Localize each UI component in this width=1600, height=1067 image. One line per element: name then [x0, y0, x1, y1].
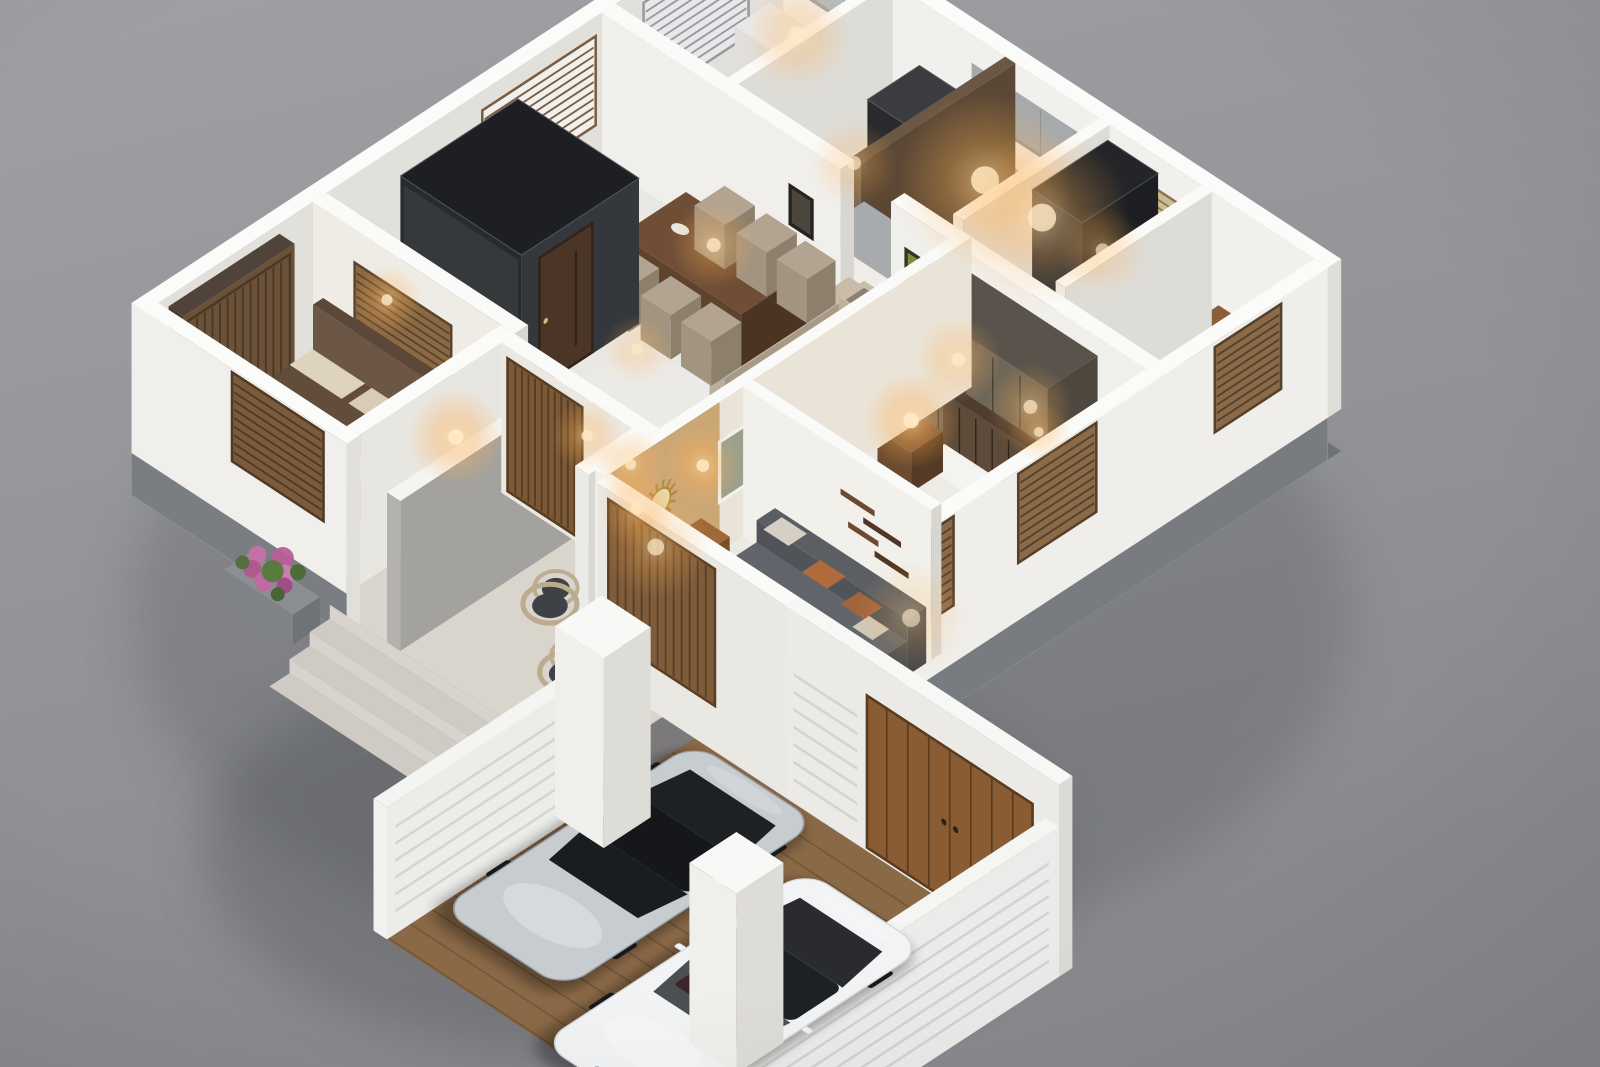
floor-plan-render: 3D isometric single-floor house plan ren… — [0, 0, 1600, 1067]
isometric-house-scene — [0, 0, 1600, 1067]
vignette-overlay — [0, 0, 1600, 1067]
